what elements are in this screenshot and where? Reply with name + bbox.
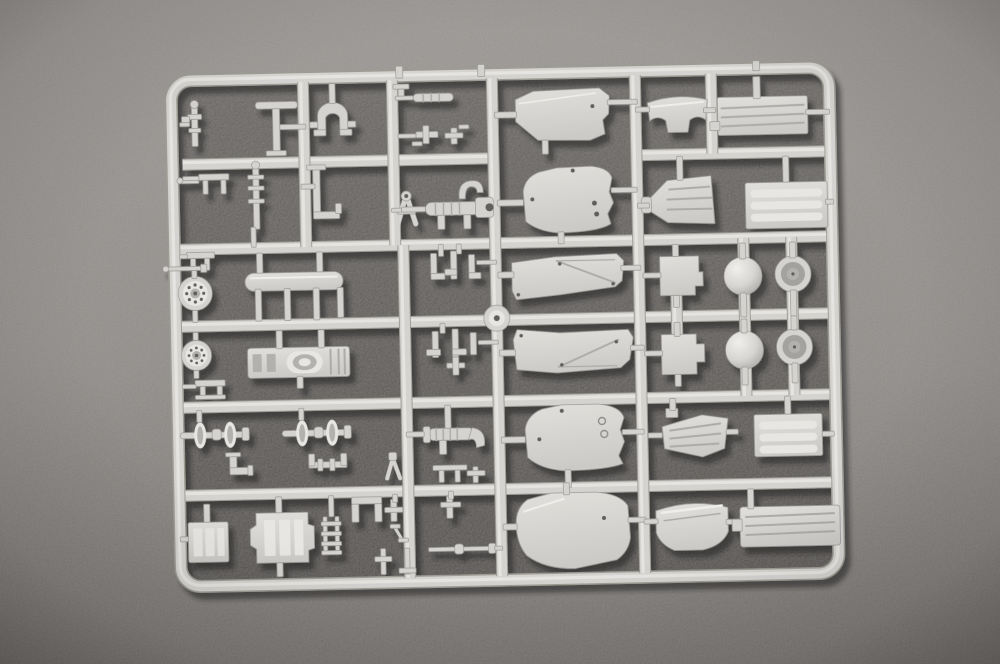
vignette (0, 0, 1000, 664)
sprue-scene (0, 0, 1000, 664)
model-kit-sprue-photo (0, 0, 1000, 664)
